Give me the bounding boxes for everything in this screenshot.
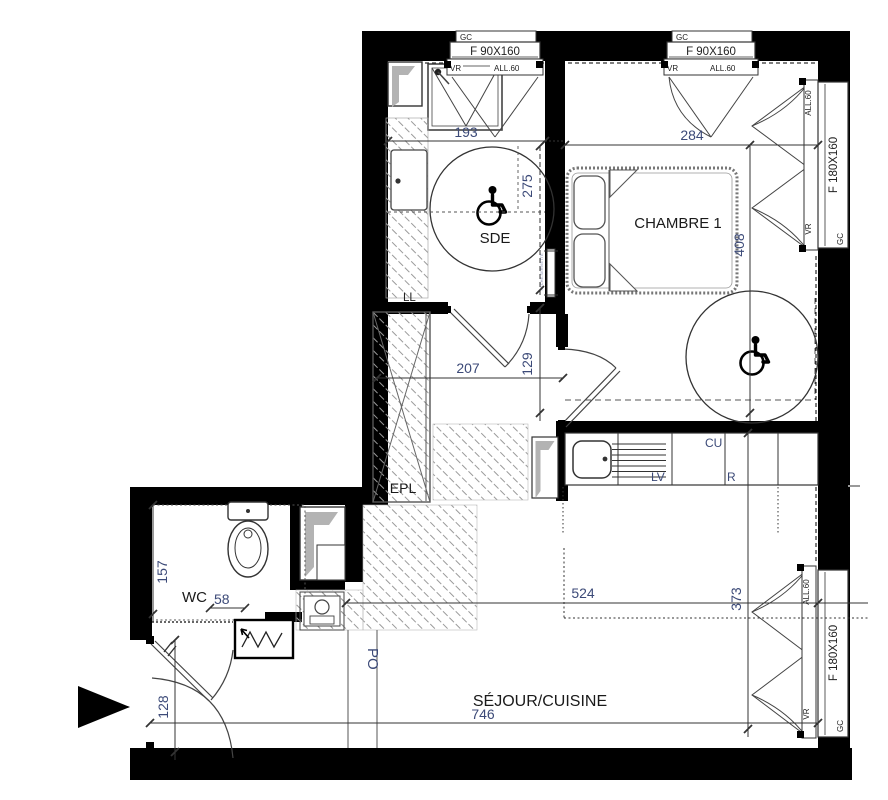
washer-label: LL [403, 292, 416, 304]
counter-dotted [563, 487, 778, 533]
pillow [574, 176, 605, 229]
towel-radiator-icon: SECHE-SERVIETTE [539, 249, 558, 297]
wall-kitchen-back [556, 421, 818, 433]
window-gc-label: GC [676, 33, 688, 42]
po-label: PO [364, 648, 381, 670]
po-passage: PO [348, 630, 381, 748]
duct-shaft-icon [532, 437, 558, 498]
hob-label: CU [705, 436, 722, 450]
entrance-arrow-icon [78, 686, 130, 728]
room-label-sde: SDE [480, 230, 511, 247]
wheelchair-icon [741, 336, 769, 375]
window-right-top: ALL.60 VR F 180X160 GC [752, 78, 848, 252]
window-gc-label: GC [836, 233, 845, 245]
duct-shaft-icon [300, 507, 345, 580]
dim-sejour-w: 746 [471, 706, 495, 722]
window-vr-label: VR [450, 64, 461, 73]
closet-epl: EPL [373, 312, 430, 502]
dim-wc-h: 157 [154, 560, 170, 584]
radiator-icon [152, 620, 293, 658]
room-wc: WC 58 [153, 502, 305, 620]
chambre-clearance-dashes [565, 298, 815, 400]
dim-wc-58: 58 [214, 591, 230, 607]
dim-sde-h: 275 [519, 174, 535, 198]
room-label-chambre: CHAMBRE 1 [634, 215, 722, 232]
toilet-icon [228, 502, 268, 577]
window-gc-label: GC [836, 720, 845, 732]
walls [130, 31, 852, 780]
dim-sejour-inner-w: 524 [571, 585, 595, 601]
dim-entry-h: 128 [155, 695, 171, 719]
wall-under-shaft [290, 580, 345, 590]
floor-plan-page: LL SDE SECHE-SERVIETTE [0, 0, 888, 800]
kitchen-counter: LV CU R [563, 433, 818, 533]
window-right-bottom: ALL.60 VR F 180X160 GC [752, 564, 848, 738]
dim-hall-h: 129 [519, 352, 535, 376]
room-sejour: SÉJOUR/CUISINE PO [78, 620, 607, 758]
window-all-label: ALL.60 [494, 64, 520, 73]
dim-chambre-w: 284 [680, 127, 704, 143]
window-type-label: F 180X160 [828, 137, 840, 193]
duct-shaft-icon [388, 62, 422, 107]
wall-shaft-right [345, 505, 363, 582]
wall-sde-bottom-right [530, 302, 565, 314]
dim-sde-w: 193 [454, 124, 478, 140]
window-vr-label: VR [667, 64, 678, 73]
hand-basin-icon [300, 592, 344, 630]
window-gc-label: GC [460, 33, 472, 42]
dim-chambre-h: 408 [731, 233, 747, 257]
room-chambre: CHAMBRE 1 [558, 168, 818, 427]
wall-top [362, 31, 850, 61]
window-type-label: F 180X160 [828, 625, 840, 681]
window-vr-label: VR [802, 708, 811, 719]
turning-circle [430, 147, 554, 271]
wall-bottom [130, 748, 852, 780]
window-type-label: F 90X160 [686, 46, 736, 58]
floor-plan-drawing: LL SDE SECHE-SERVIETTE [0, 0, 888, 800]
chambre-door [558, 343, 620, 427]
window-all-label: ALL.60 [804, 90, 813, 116]
room-label-epl: EPL [390, 480, 417, 496]
wheelchair-icon [478, 186, 506, 225]
pillow [574, 234, 605, 287]
wall-hall-chambre [556, 314, 568, 347]
dim-sejour-h: 373 [728, 587, 744, 611]
dishwasher-label: LV [651, 470, 665, 484]
fridge-label: R [727, 470, 736, 484]
window-all-label: ALL.60 [802, 579, 811, 605]
window-top-2: GC F 90X160 VR ALL.60 [661, 31, 759, 137]
window-all-label: ALL.60 [710, 64, 736, 73]
dim-hall-w: 207 [456, 360, 480, 376]
window-vr-label: VR [804, 223, 813, 234]
vanity-icon [386, 118, 428, 298]
window-type-label: F 90X160 [470, 46, 520, 58]
turning-circle [686, 291, 818, 423]
room-label-wc: WC [182, 589, 207, 606]
